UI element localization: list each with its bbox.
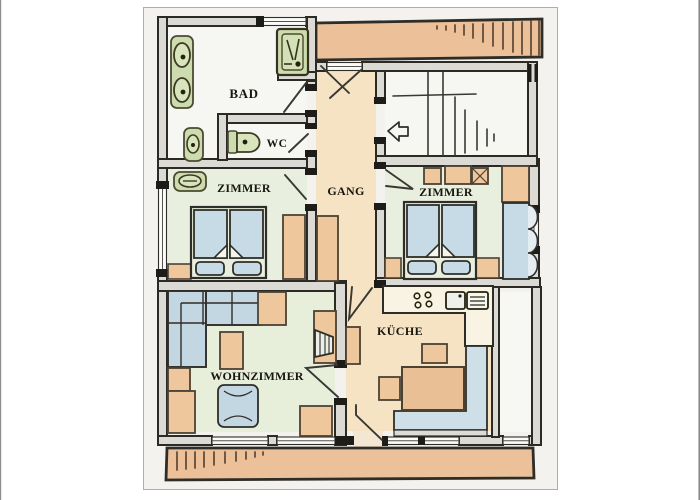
svg-text:GANG: GANG xyxy=(327,184,364,198)
svg-text:BAD: BAD xyxy=(229,86,258,101)
svg-text:ZIMMER: ZIMMER xyxy=(419,185,473,199)
svg-text:WC: WC xyxy=(267,138,288,150)
svg-text:ZIMMER: ZIMMER xyxy=(217,181,271,195)
svg-text:WOHNZIMMER: WOHNZIMMER xyxy=(210,369,303,383)
svg-text:KÜCHE: KÜCHE xyxy=(377,324,423,338)
